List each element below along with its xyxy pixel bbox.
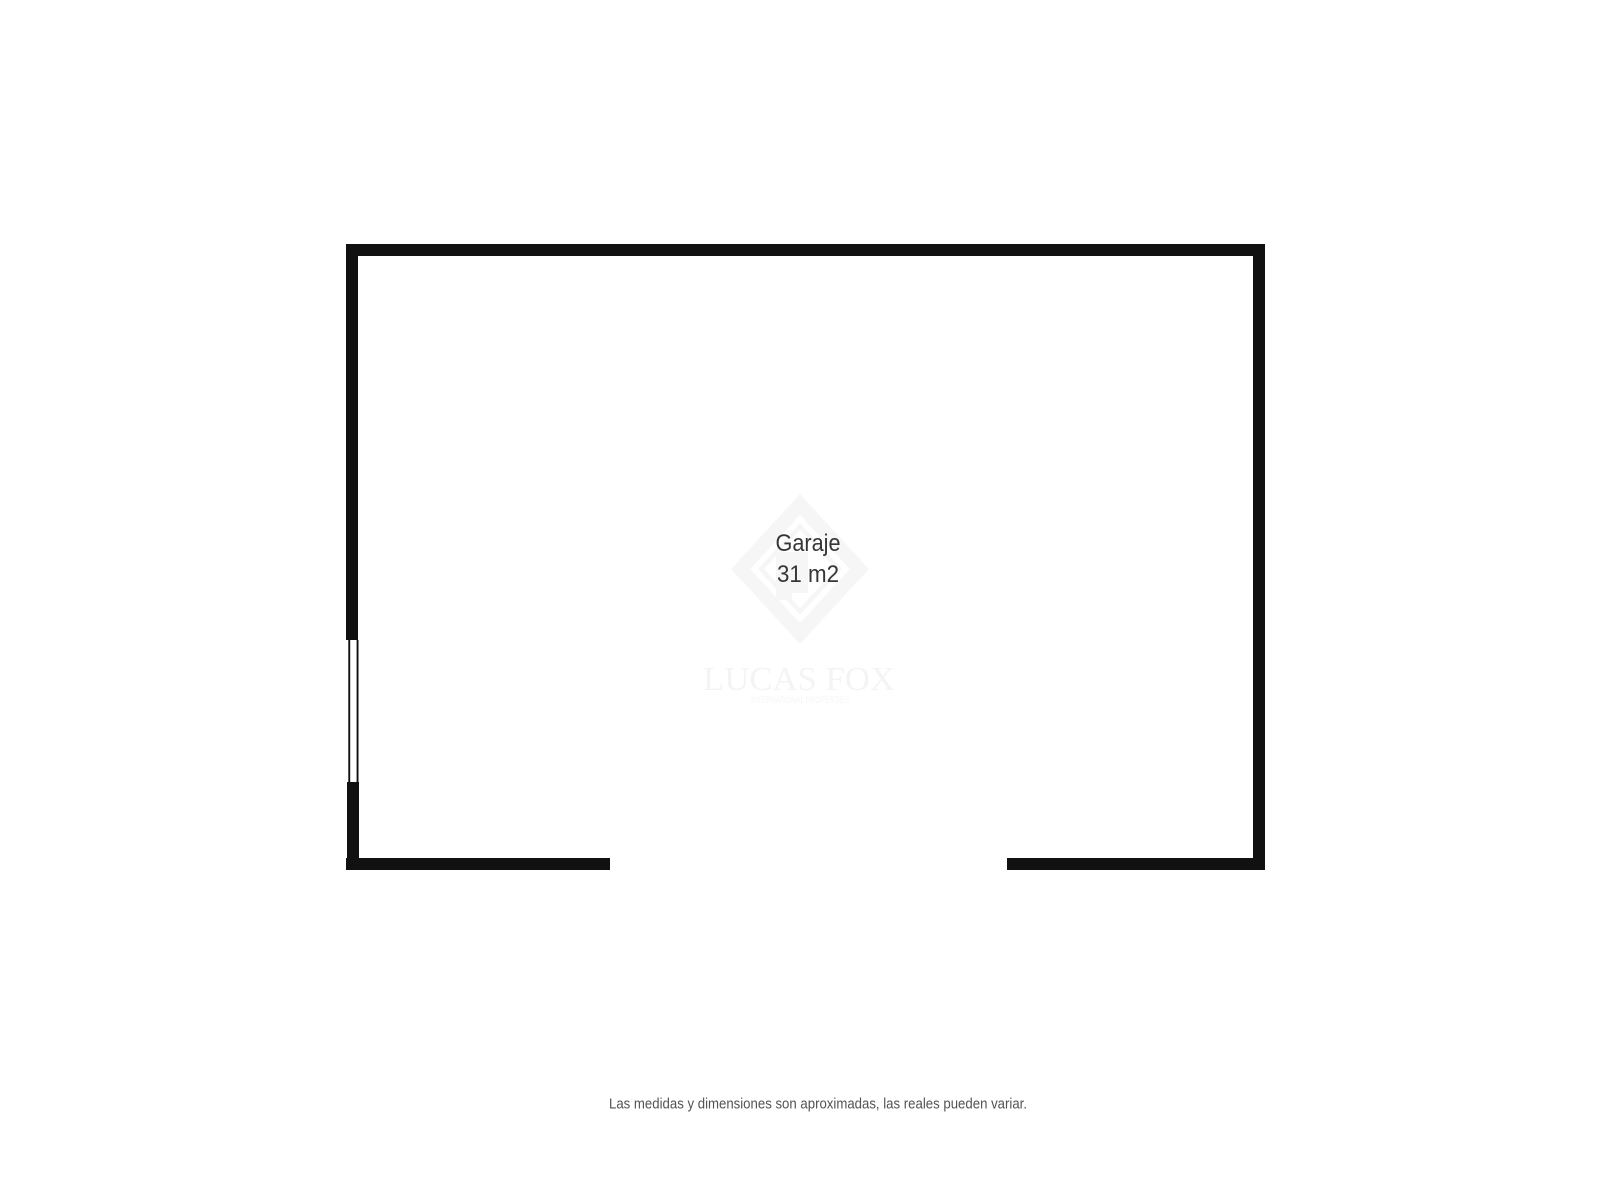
- svg-text:INTERNATIONAL PROPERTIES: INTERNATIONAL PROPERTIES: [751, 695, 849, 705]
- svg-text:31 m2: 31 m2: [777, 561, 839, 588]
- svg-text:Las medidas y dimensiones son: Las medidas y dimensiones son aproximada…: [609, 1096, 1027, 1113]
- svg-text:Garaje: Garaje: [776, 530, 841, 557]
- svg-text:LUCAS FOX: LUCAS FOX: [703, 661, 895, 698]
